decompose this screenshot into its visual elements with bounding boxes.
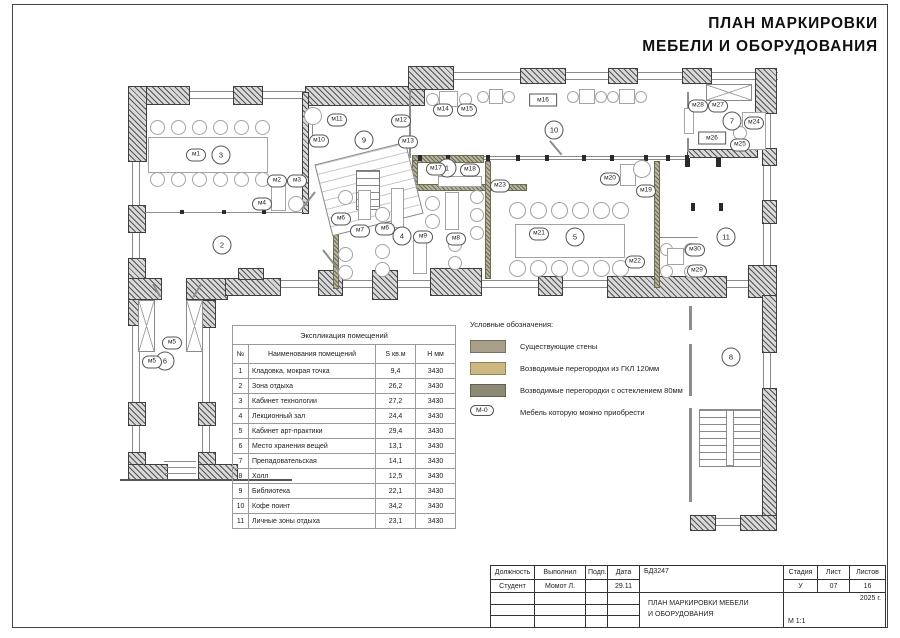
furniture-table [619,89,635,104]
table-cell: Препадовательская [249,454,376,469]
furniture-chair [470,208,484,222]
column-post [545,155,549,161]
furniture-chair [567,91,579,103]
furniture-chair [612,202,629,219]
legend-swatch [470,340,506,353]
wall-pier [762,148,777,166]
table-row: 11Личные зоны отдыха23,13430 [233,514,456,529]
table-row: 9Библиотека22,13430 [233,484,456,499]
table-cell: 3430 [416,469,456,484]
tb-drawing-title-line1: ПЛАН МАРКИРОВКИ МЕБЕЛИ [648,599,781,610]
table-cell: 9 [233,484,249,499]
furniture-chair [660,265,673,278]
column-post [516,155,520,161]
schedule-header-height: Н мм [416,345,456,364]
table-cell: 13,1 [376,439,416,454]
room-number-marker: 5 [566,228,585,247]
wall-pier [128,205,146,233]
column-post [719,203,723,211]
furniture-chair [470,190,484,204]
furniture-marker-boxed: м26 [698,132,726,145]
table-cell: 10 [233,499,249,514]
table-cell: 4 [233,409,249,424]
column-post [262,210,266,214]
wall-pier [225,278,281,296]
wall-pier [128,402,146,426]
furniture-marker: м15 [457,104,477,117]
tb-header-signature: Подп. [586,566,608,580]
furniture-marker: м17 [426,163,446,176]
tb-header-position: Должность [491,566,535,580]
entry-step [164,473,196,474]
table-cell: 3430 [416,439,456,454]
table-cell: 3430 [416,499,456,514]
furniture-marker: м7 [350,225,370,238]
furniture-marker: м13 [398,136,418,149]
table-row: 3Кабинет технологии27,23430 [233,394,456,409]
wall-pier [430,268,482,296]
legend-item-label: Возводимые перегородки из ГКЛ 120мм [520,364,659,373]
room-number-marker: 8 [722,348,741,367]
furniture-chair [338,265,353,280]
furniture-marker: м4 [252,198,272,211]
table-cell: 8 [233,469,249,484]
table-row: 2Зона отдыха26,23430 [233,379,456,394]
reference-line [660,237,698,238]
furniture-chair [213,172,228,187]
table-cell: 12,5 [376,469,416,484]
legend-item-label: Мебель которую можно приобрести [520,408,645,417]
furniture-marker: м14 [433,104,453,117]
table-cell: 5 [233,424,249,439]
legend-swatch [470,362,506,375]
furniture-marker: м23 [490,180,510,193]
wall-pier [305,86,425,106]
furniture-marker: м28 [688,100,708,113]
furniture-desk [358,190,371,220]
column-post [418,155,422,161]
table-cell: Место хранения вещей [249,439,376,454]
furniture-chair [595,91,607,103]
furniture-marker: м3 [287,175,307,188]
counter [438,176,482,187]
furniture-chair [551,260,568,277]
wall-pier [687,149,758,158]
room-number-marker: 11 [717,228,736,247]
furniture-chair [509,260,526,277]
column-post [486,155,490,161]
table-cell: Холл [249,469,376,484]
room-number-marker: 2 [213,236,232,255]
legend: Условные обозначения: Существующие стены… [470,320,710,425]
table-row: 8Холл12,53430 [233,469,456,484]
floor-plan: 1234567891011м1м2м3м4м5м5м6м7м6м8м9м10м1… [0,0,900,638]
column-post [222,210,226,214]
table-row: 5Кабинет арт-практики29,43430 [233,424,456,439]
legend-item: Возводимые перегородки из ГКЛ 120мм [470,359,710,381]
table-cell: 26,2 [376,379,416,394]
furniture-marker: м12 [391,115,411,128]
table-cell: 27,2 [376,394,416,409]
table-cell: 3430 [416,364,456,379]
furniture-chair [192,120,207,135]
furniture-marker: м30 [685,244,705,257]
furniture-marker-boxed: м16 [529,94,557,107]
legend-item-label: Существующие стены [520,342,597,351]
furniture-chair [234,120,249,135]
furniture-chair [470,226,484,240]
column-post [180,210,184,214]
column-post [582,155,586,161]
legend-title: Условные обозначения: [470,320,710,329]
partition [485,161,491,279]
tb-header-author: Выполнил [535,566,586,580]
wall-pier [755,68,777,114]
table-row: 6Место хранения вещей13,13430 [233,439,456,454]
furniture-chair [572,202,589,219]
furniture-table [667,248,684,265]
legend-item: Возводимые перегородки с остеклением 80м… [470,381,710,403]
furniture-marker: м19 [636,185,656,198]
wall-pier [762,388,777,520]
table-cell: 11 [233,514,249,529]
table-row: 10Кофе поинт34,23430 [233,499,456,514]
table-cell: 3430 [416,394,456,409]
furniture-marker: м5 [162,337,182,350]
title-block: Должность Выполнил Подп. Дата БД3247 Ста… [490,565,886,628]
furniture-chair [607,91,619,103]
furniture-chair [635,91,647,103]
furniture-chair [375,262,390,277]
schedule-body: 1Кладовка, мокрая точка9,434302Зона отды… [233,364,456,529]
column-post [666,155,670,161]
table-cell: 3430 [416,379,456,394]
staircase-flight [734,410,760,466]
furniture-table [579,89,595,104]
tb-header-stage: Стадия [784,566,818,580]
tb-year: 2025 г. [860,595,881,602]
table-cell: 22,1 [376,484,416,499]
table-cell: 3 [233,394,249,409]
furniture-chair [171,120,186,135]
furniture-marker: м1 [186,149,206,162]
furniture-chair [425,214,440,229]
schedule-header-name: Наименования помещений [249,345,376,364]
table-cell: 23,1 [376,514,416,529]
wall-pier [233,86,263,105]
furniture-chair [633,160,651,178]
furniture-marker: м21 [529,228,549,241]
tb-sheets: 16 [850,580,886,593]
furniture-marker: м27 [708,100,728,113]
table-cell: Личные зоны отдыха [249,514,376,529]
wall-pier [748,265,777,298]
furniture-marker: м22 [625,256,645,269]
table-cell: 3430 [416,454,456,469]
furniture-chair [425,196,440,211]
furniture-marker: м20 [600,173,620,186]
wall-pier [762,200,777,224]
furniture-marker: м5 [142,356,162,369]
wall-pier [538,276,563,296]
wardrobe [138,300,155,352]
furniture-chair [448,256,462,270]
furniture-table [489,89,503,104]
furniture-chair [503,91,515,103]
furniture-chair [572,260,589,277]
wall-pier [608,68,638,84]
furniture-chair [255,120,270,135]
table-cell: 7 [233,454,249,469]
tb-header-date: Дата [608,566,640,580]
furniture-marker: м6 [375,223,395,236]
tb-position: Студент [491,580,535,593]
column-post [685,158,690,167]
tb-signature [586,580,608,593]
schedule-header-area: S кв.м [376,345,416,364]
furniture-chair [213,120,228,135]
furniture-chair [338,247,353,262]
table-cell: Зона отдыха [249,379,376,394]
legend-items: Существующие стеныВозводимые перегородки… [470,337,710,403]
tb-header-sheets: Листов [850,566,886,580]
wall-pier [762,295,777,353]
furniture-chair [171,172,186,187]
room-number-marker: 9 [355,131,374,150]
table-cell: Библиотека [249,484,376,499]
schedule-header-num: № [233,345,249,364]
tb-date: 29.11 [608,580,640,593]
legend-item-label: Возводимые перегородки с остеклением 80м… [520,386,683,395]
wall-pier [520,68,566,84]
table-cell: 34,2 [376,499,416,514]
furniture-chair [150,172,165,187]
table-cell: Кабинет технологии [249,394,376,409]
wall-pier [607,276,727,298]
room-schedule: Экспликация помещений № Наименования пом… [232,325,456,529]
window-strip [408,72,778,80]
column-post [610,155,614,161]
furniture-chair [593,202,610,219]
tb-header-sheet: Лист [818,566,850,580]
wall-pier [690,515,716,531]
column-post [691,203,695,211]
table-cell: 14,1 [376,454,416,469]
furniture-chair [477,91,489,103]
table-cell: 1 [233,364,249,379]
furniture-marker: м29 [687,265,707,278]
tb-doc-code: БД3247 [640,566,784,593]
wall-pier [198,402,216,426]
furniture-chair [530,202,547,219]
window-strip [202,304,210,472]
wall-pier [740,515,777,531]
drawing-sheet: ПЛАН МАРКИРОВКИ МЕБЕЛИ И ОБОРУДОВАНИЯ [0,0,900,638]
furniture-chair [150,120,165,135]
room-number-marker: 7 [723,112,742,131]
table-row: 1Кладовка, мокрая точка9,43430 [233,364,456,379]
room-number-marker: 4 [393,227,412,246]
wardrobe [186,300,203,352]
staircase-divider [726,410,734,466]
entry-step [164,467,196,468]
furniture-marker-badge: М-0 [470,405,494,416]
table-cell: 2 [233,379,249,394]
table-row: 4Лекционный зал24,43430 [233,409,456,424]
furniture-marker: м18 [460,164,480,177]
table-cell: 24,4 [376,409,416,424]
furniture-desk [445,192,459,230]
furniture-marker: м6 [331,213,351,226]
table-cell: 29,4 [376,424,416,439]
furniture-chair [192,172,207,187]
furniture-cabinet [271,185,286,211]
wall-pier [408,66,454,90]
furniture-table [148,137,268,173]
partition [654,161,660,288]
wall-pier [238,268,264,280]
table-cell: 3430 [416,409,456,424]
furniture-chair [375,207,390,222]
wall-pier [682,68,712,84]
tb-sheet: 07 [818,580,850,593]
tb-drawing-title: ПЛАН МАРКИРОВКИ МЕБЕЛИ И ОБОРУДОВАНИЯ [640,593,784,628]
furniture-chair [593,260,610,277]
wall-pier [128,464,168,480]
tb-stage: У [784,580,818,593]
coat-stand [304,107,322,125]
table-cell: 9,4 [376,364,416,379]
table-cell: Кофе поинт [249,499,376,514]
tb-scale: М 1:1 [788,618,806,625]
legend-item: Существующие стены [470,337,710,359]
schedule-title: Экспликация помещений [233,326,456,345]
table-cell: 6 [233,439,249,454]
table-cell: 3430 [416,424,456,439]
furniture-marker: м10 [309,135,329,148]
wall-pier [128,86,147,162]
furniture-marker: м2 [267,175,287,188]
tb-author: Момот Л. [535,580,586,593]
table-cell: Лекционный зал [249,409,376,424]
furniture-chair [338,190,353,205]
wall-line [687,138,689,152]
door-leaf [549,140,562,155]
furniture-chair [509,202,526,219]
tb-drawing-title-line2: И ОБОРУДОВАНИЯ [648,610,781,621]
table-cell: Кабинет арт-практики [249,424,376,439]
tb-year-scale-cell: 2025 г. М 1:1 [784,593,886,628]
wardrobe [706,84,752,101]
furniture-marker: м25 [730,139,750,152]
room-number-marker: 3 [212,146,231,165]
entry-step [164,461,196,462]
legend-swatch [470,384,506,397]
room-number-marker: 10 [545,121,564,140]
furniture-chair [375,244,390,259]
table-cell: 3430 [416,514,456,529]
table-cell: Кладовка, мокрая точка [249,364,376,379]
furniture-desk [391,188,404,228]
furniture-marker: м9 [413,231,433,244]
furniture-marker: м8 [446,233,466,246]
furniture-marker: м11 [327,114,347,127]
furniture-chair [234,172,249,187]
furniture-marker: м24 [744,117,764,130]
furniture-chair [551,202,568,219]
furniture-desk [413,240,427,274]
table-row: 7Препадовательская14,13430 [233,454,456,469]
furniture-chair [530,260,547,277]
table-cell: 3430 [416,484,456,499]
column-post [716,158,721,167]
legend-item: М-0 Мебель которую можно приобрести [470,403,710,425]
